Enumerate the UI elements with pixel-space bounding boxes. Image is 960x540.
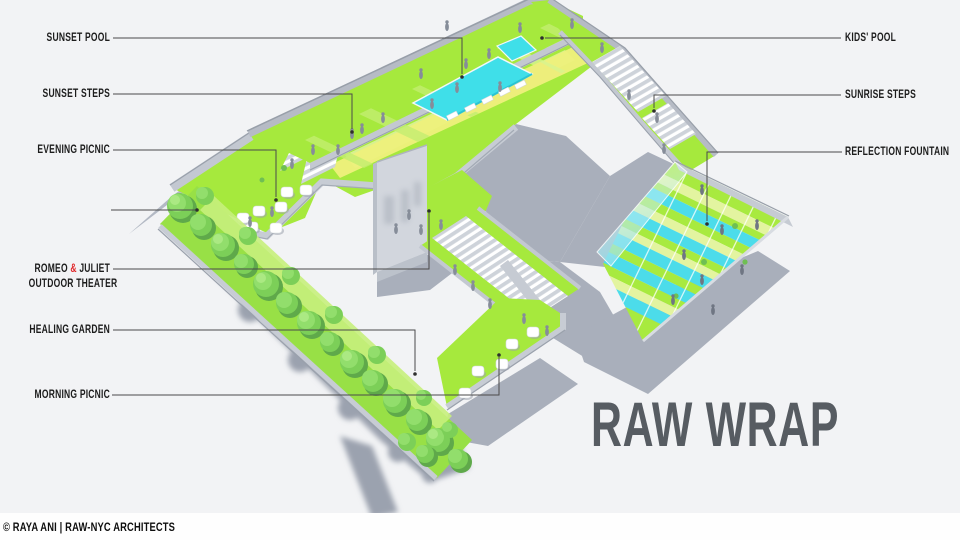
label-morning-picnic: MORNING PICNIC xyxy=(29,388,110,403)
juliet-text: JULIET xyxy=(77,263,110,275)
romeo-text: ROMEO xyxy=(35,263,71,275)
credit-line: © RAYA ANI | RAW-NYC ARCHITECTS xyxy=(3,520,175,534)
label-romeo-juliet-outdoor-theater: ROMEO & JULIETOUTDOOR THEATER xyxy=(29,262,110,292)
raw-wrap-presentation-board: SUNSET POOL SUNSET STEPS EVENING PICNIC … xyxy=(0,0,960,540)
label-kids-pool: KIDS' POOL xyxy=(845,31,896,46)
outdoor-theater-text: OUTDOOR THEATER xyxy=(29,278,118,290)
label-sunset-pool: SUNSET POOL xyxy=(29,31,110,46)
label-healing-garden: HEALING GARDEN xyxy=(29,323,110,338)
label-sunrise-steps: SUNRISE STEPS xyxy=(845,88,916,103)
label-evening-picnic: EVENING PICNIC xyxy=(29,143,110,158)
project-title: RAW WRAP xyxy=(591,394,839,457)
label-reflection-fountain: REFLECTION FOUNTAIN xyxy=(845,145,949,160)
label-sunset-steps: SUNSET STEPS xyxy=(29,87,110,102)
